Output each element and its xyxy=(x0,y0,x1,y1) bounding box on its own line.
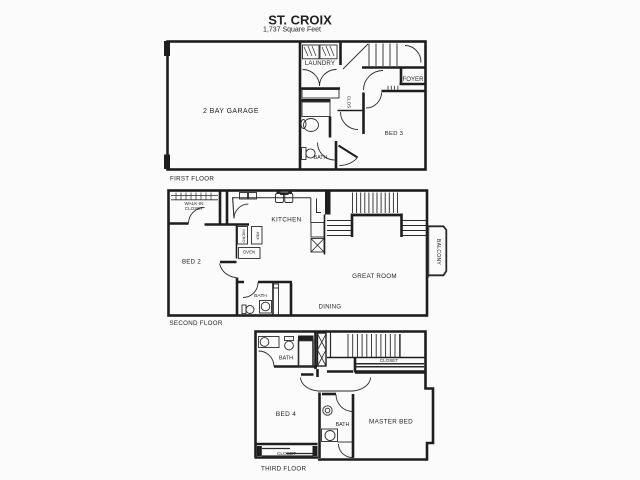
svg-text:BATH: BATH xyxy=(279,356,293,362)
svg-text:FOYER: FOYER xyxy=(403,76,425,83)
svg-text:BATH: BATH xyxy=(254,293,267,299)
svg-text:LAUNDRY: LAUNDRY xyxy=(305,60,335,67)
svg-text:FIRST FLOOR: FIRST FLOOR xyxy=(170,176,214,183)
svg-text:DINING: DINING xyxy=(319,304,342,310)
svg-text:GREAT ROOM: GREAT ROOM xyxy=(352,273,397,280)
svg-text:SECOND FLOOR: SECOND FLOOR xyxy=(170,320,223,327)
svg-text:LINEN: LINEN xyxy=(301,336,311,340)
svg-text:CLOSET: CLOSET xyxy=(277,451,296,457)
svg-text:ST. CROIX: ST. CROIX xyxy=(268,13,332,28)
svg-text:2 BAY GARAGE: 2 BAY GARAGE xyxy=(203,108,259,115)
svg-text:CLOSET: CLOSET xyxy=(185,206,204,211)
svg-text:1,737 Square Feet: 1,737 Square Feet xyxy=(263,27,321,34)
svg-text:BATH: BATH xyxy=(314,155,328,161)
svg-text:BED 2: BED 2 xyxy=(182,259,201,266)
svg-text:REF: REF xyxy=(256,232,261,241)
svg-text:MASTER BED: MASTER BED xyxy=(369,419,413,426)
svg-text:CLOS: CLOS xyxy=(347,96,352,109)
svg-text:CLOSET: CLOSET xyxy=(380,358,399,363)
svg-text:THIRD FLOOR: THIRD FLOOR xyxy=(261,466,306,473)
svg-text:BED 3: BED 3 xyxy=(385,131,404,137)
svg-text:BED 4: BED 4 xyxy=(276,411,296,418)
svg-text:OVEN: OVEN xyxy=(243,249,255,254)
svg-text:BATH: BATH xyxy=(336,422,350,428)
svg-text:MICRO: MICRO xyxy=(242,229,247,242)
svg-text:KITCHEN: KITCHEN xyxy=(271,216,301,223)
svg-text:BALCONY: BALCONY xyxy=(435,239,441,265)
